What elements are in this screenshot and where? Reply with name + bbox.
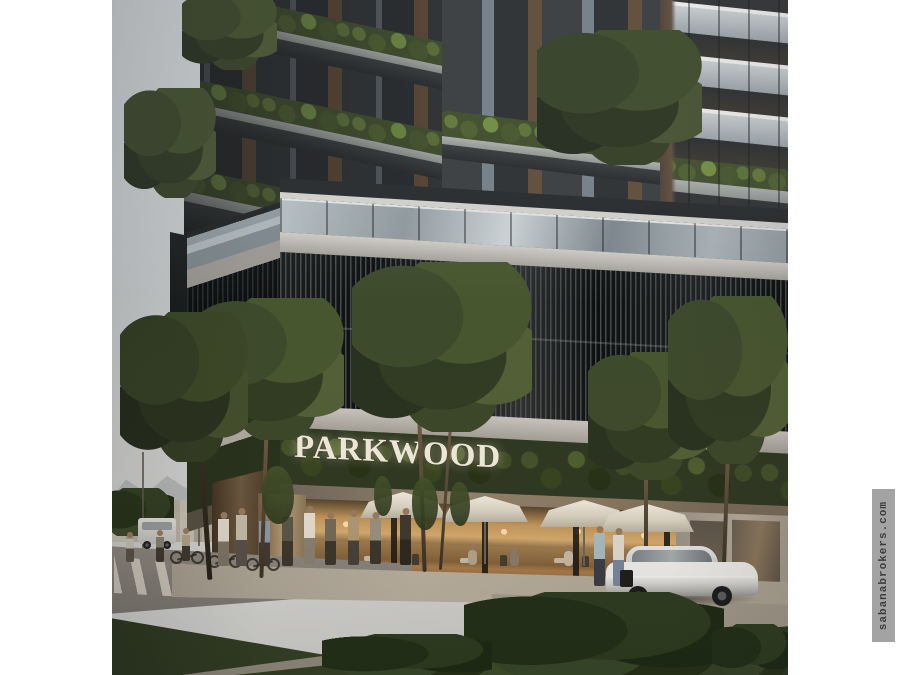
foreground-shrubs [712, 624, 788, 675]
seated-person [468, 550, 477, 565]
hanging-vine [262, 466, 294, 524]
balcony-tree [124, 88, 216, 198]
street-tree [668, 296, 788, 464]
person [236, 508, 247, 566]
umbrella-pole [484, 518, 486, 564]
person [400, 508, 411, 565]
seated-person [564, 551, 573, 566]
street-tree [352, 262, 532, 432]
rendering-photo: PARKWOOD [112, 0, 788, 675]
cafe-chair [412, 554, 419, 565]
watermark: sabanabrokers.com [872, 489, 895, 642]
seated-person [510, 552, 519, 566]
person [348, 510, 359, 565]
foreground-shrubs [322, 634, 492, 675]
person [304, 506, 315, 564]
person [126, 532, 134, 562]
person [182, 528, 190, 561]
person [325, 512, 336, 565]
person [370, 512, 381, 564]
umbrella-pole [583, 522, 585, 566]
hanging-vine [374, 476, 392, 516]
hanging-vine [450, 482, 470, 526]
person [156, 530, 164, 562]
page-canvas: PARKWOOD [0, 0, 900, 675]
cafe-chair [500, 555, 507, 566]
rolling-bag [620, 570, 633, 587]
balcony-tree [537, 30, 702, 165]
person [218, 512, 229, 566]
hanging-vine [412, 478, 438, 530]
street-tree [120, 312, 248, 462]
person [594, 526, 605, 586]
foreground-shrubs [464, 592, 724, 675]
watermark-label: sabanabrokers.com [878, 501, 890, 630]
balcony-tree [182, 0, 277, 70]
